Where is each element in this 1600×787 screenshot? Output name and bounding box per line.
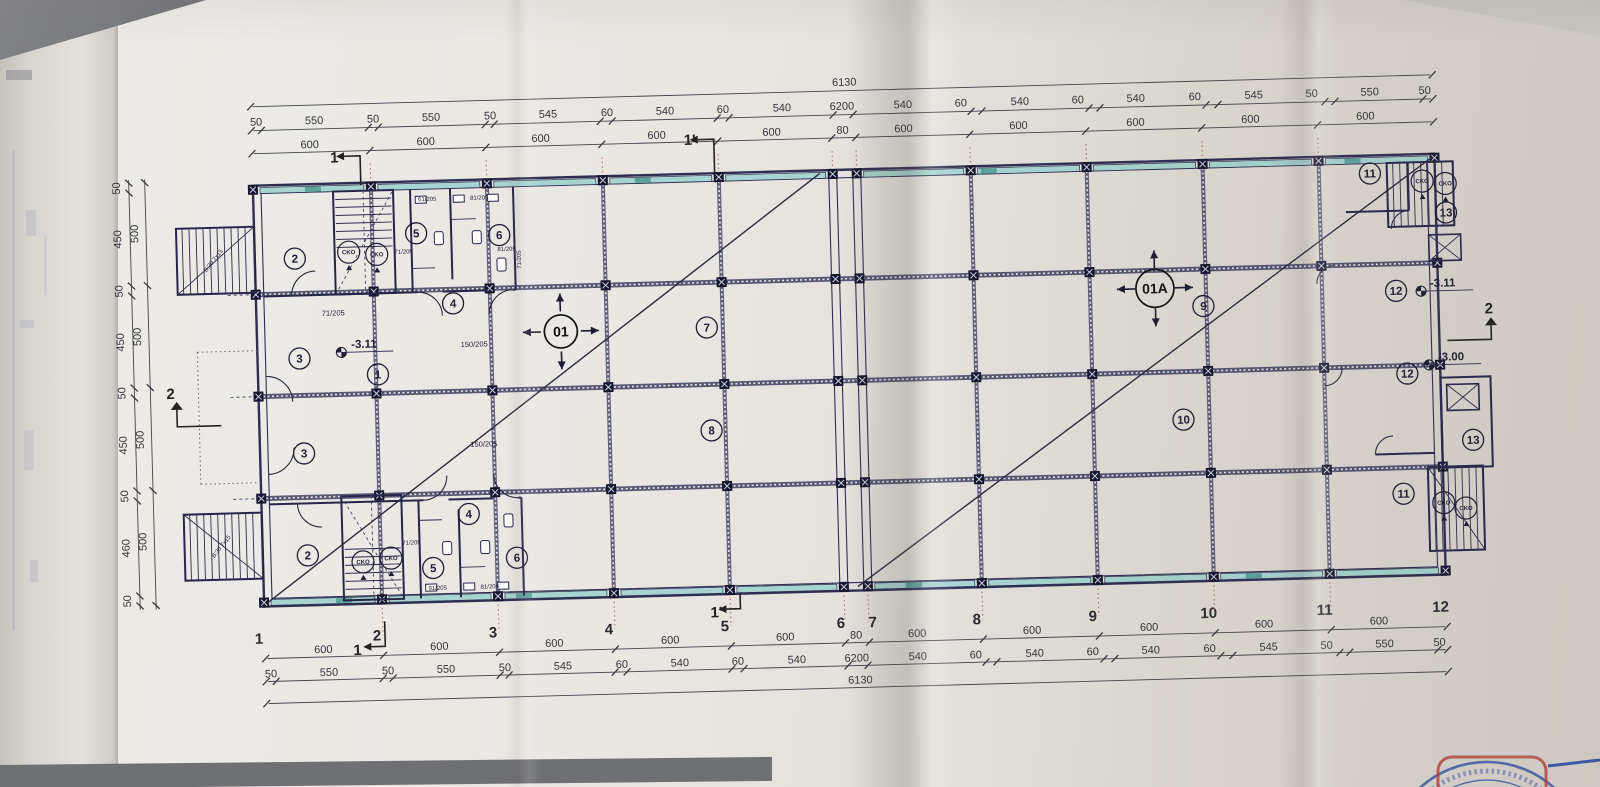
dim-label: 50 <box>250 116 263 128</box>
dim-label: 550 <box>1375 638 1394 650</box>
stamp-red-box <box>1438 757 1546 787</box>
ghost-drawing-mark <box>44 235 47 295</box>
door-size-label: 71/205 <box>394 249 413 256</box>
room-tag: 5 <box>430 563 437 575</box>
dim-label: 600 <box>1241 113 1260 125</box>
section-label: 1 <box>330 149 339 166</box>
dim-label: 550 <box>422 112 441 124</box>
stair-core-top-left: CKO CKO <box>333 190 396 295</box>
dim-label: 50 <box>382 665 395 677</box>
grid-number: 6 <box>836 615 845 632</box>
left-dimension-chain: 50 450 50 450 50 450 50 460 50 500 500 5… <box>111 179 160 610</box>
dim-label: 540 <box>894 99 913 111</box>
dim-label: 50 <box>1320 640 1333 652</box>
ghost-drawing-mark <box>20 320 34 328</box>
room-tag: 2 <box>304 550 311 562</box>
dim-label: 600 <box>416 136 435 148</box>
dim-label: 60 <box>1086 646 1099 658</box>
entry-canopy <box>197 350 295 484</box>
shaft-label: CKO <box>1459 506 1473 512</box>
room-tag: 3 <box>296 353 303 365</box>
dim-label: 50 <box>367 113 380 125</box>
room-tag: 13 <box>1467 435 1480 447</box>
room-tag: 6 <box>496 230 503 242</box>
grid-number: 2 <box>373 627 382 644</box>
room-tag: 6 <box>514 553 521 565</box>
dim-label: 450 <box>112 230 124 249</box>
shaft-label: CKO <box>356 560 370 566</box>
dim-label: 6200 <box>829 100 854 113</box>
dim-label: 600 <box>1140 621 1159 633</box>
room-tag: 9 <box>1200 301 1207 313</box>
stamp <box>1387 757 1600 787</box>
room-tag: 11 <box>1397 489 1410 501</box>
dim-label: 50 <box>499 662 512 674</box>
stamp-signature-line <box>1548 760 1600 766</box>
section-marker-1-top: 1 <box>330 149 361 186</box>
photo-of-floor-plan-drawing: 6130 50 550 50 550 50 545 60 540 60 540 … <box>0 0 1600 787</box>
dim-label: 600 <box>661 634 680 646</box>
room-tag: 5 <box>413 228 420 240</box>
dim-label: 550 <box>1360 86 1379 98</box>
dim-label: 540 <box>1141 644 1160 656</box>
dim-label: 60 <box>1188 91 1201 103</box>
room-tag: 13 <box>1439 207 1452 219</box>
level-label: -3.11 <box>351 338 377 351</box>
grid-number: 4 <box>605 621 614 638</box>
section-marker-2-left: 2 <box>166 385 221 427</box>
dim-label: 50 <box>113 285 125 298</box>
level-label: -3.00 <box>1438 351 1465 364</box>
dim-label: 450 <box>115 333 127 352</box>
dim-label: 600 <box>314 644 333 656</box>
stair-label: B:30 7x15 <box>211 534 233 559</box>
dim-label: 550 <box>437 663 456 675</box>
dim-label: 540 <box>1126 93 1145 105</box>
door-size-label: 71/205 <box>322 308 345 318</box>
dim-label: 600 <box>647 130 666 142</box>
shaft-label: CKO <box>370 252 384 258</box>
dim-label: 80 <box>850 629 863 641</box>
dim-label: 500 <box>134 431 146 450</box>
door-size-label: 81/205 <box>470 195 489 202</box>
dim-label: 60 <box>732 656 745 668</box>
ghost-drawing-mark <box>26 210 36 236</box>
room-tags: 2 5 6 4 3 1 7 3 8 9 10 11 13 12 12 13 11… <box>283 160 1487 582</box>
dim-label: 600 <box>300 139 319 151</box>
room-tag: 12 <box>1390 286 1403 298</box>
space-marker-label: 01A <box>1142 280 1168 297</box>
top-dimension-chain: 6130 50 550 50 550 50 545 60 540 60 540 … <box>247 61 1437 158</box>
dim-label: 500 <box>132 328 144 347</box>
external-stair-bottom-left: B:30 7x15 <box>184 513 264 581</box>
room-tag: 12 <box>1401 368 1414 380</box>
section-label: 1' <box>710 604 722 621</box>
dim-label: 50 <box>111 182 123 195</box>
dim-label: 50 <box>1418 85 1431 97</box>
dim-label: 600 <box>1370 615 1389 627</box>
space-marker-label: 01 <box>553 323 569 339</box>
dim-label: 50 <box>484 110 497 122</box>
room-tag: 3 <box>301 448 308 460</box>
dim-label: 540 <box>656 105 675 117</box>
dim-label: 60 <box>1203 643 1216 655</box>
space-marker-01: 01 <box>522 292 600 370</box>
dim-label: 600 <box>908 628 927 640</box>
dim-label: 600 <box>545 637 564 649</box>
section-marker-2-right: 2 <box>1446 300 1497 340</box>
dim-label: 600 <box>894 123 913 135</box>
dim-label: 540 <box>773 102 792 114</box>
section-label: 2 <box>1484 300 1493 317</box>
dim-label: 540 <box>788 654 807 666</box>
dim-label: 545 <box>539 108 558 120</box>
opening-size-labels: 71/205 150/205 150/205 <box>322 304 498 453</box>
dim-label: 600 <box>762 126 781 138</box>
grid-number: 8 <box>972 611 981 628</box>
dim-label: 600 <box>1009 120 1028 132</box>
dim-label: 540 <box>1025 648 1044 660</box>
dim-label: 600 <box>1126 117 1145 129</box>
dim-label: 50 <box>119 490 131 503</box>
door-size-label: 81/205 <box>497 247 516 254</box>
stair-label: B:30 7x15 <box>203 248 225 273</box>
dim-label: 540 <box>671 657 690 669</box>
section-label: 1 <box>353 642 362 659</box>
dim-label: 450 <box>118 436 130 455</box>
dim-label: 60 <box>601 107 614 119</box>
dim-label: 600 <box>531 133 550 145</box>
room-tag: 2 <box>291 254 298 266</box>
section-marker-1p-top: 1' <box>684 131 715 174</box>
shaft-label: CKO <box>1438 181 1452 187</box>
dim-label: 600 <box>1023 625 1042 637</box>
grid-number: 10 <box>1200 605 1217 622</box>
dim-label: 600 <box>1356 110 1375 122</box>
door-size-label: 150/205 <box>461 339 488 349</box>
floor-plan-sheet: 6130 50 550 50 550 50 545 60 540 60 540 … <box>71 21 1528 720</box>
space-marker-01A: 01A <box>1116 249 1194 327</box>
dim-label: 600 <box>776 631 795 643</box>
dim-label: 500 <box>137 532 149 551</box>
dim-label: 50 <box>116 387 128 400</box>
door-size-label: 91/205 <box>429 586 448 593</box>
dim-label: 545 <box>1244 89 1263 101</box>
external-stair-top-left: B:30 7x15 <box>176 227 256 295</box>
dim-label: 540 <box>908 651 927 663</box>
dim-label: 545 <box>554 660 573 672</box>
stair-core-bottom-left: CKO CKO <box>341 495 404 601</box>
ghost-drawing-mark <box>24 430 34 470</box>
dim-label: 50 <box>265 668 278 680</box>
room-tag: 10 <box>1177 414 1190 426</box>
room-tag: 1 <box>375 369 382 381</box>
room-tag: 7 <box>703 322 710 334</box>
dim-label: 60 <box>955 97 968 109</box>
shaft-label: CKO <box>384 556 398 562</box>
shaft-label: CKO <box>1415 179 1429 185</box>
door-size-label: 150/205 <box>470 439 497 449</box>
shaft-label: CKO <box>1437 500 1451 506</box>
grid-number: 11 <box>1317 602 1333 619</box>
room-tag: 4 <box>465 509 472 521</box>
dim-total-top: 6130 <box>832 76 857 89</box>
dim-label: 460 <box>120 539 132 558</box>
dim-label: 600 <box>1255 618 1274 630</box>
room-tag: 8 <box>708 425 715 437</box>
dim-label: 550 <box>320 667 339 679</box>
dim-total-bottom: 6130 <box>848 674 873 687</box>
door-size-label: 71/205 <box>517 250 524 269</box>
door-size-label: 71/205 <box>402 540 421 547</box>
ghost-drawing-mark <box>30 560 38 582</box>
ghost-drawing-mark <box>12 150 15 630</box>
dim-label: 50 <box>1305 88 1318 100</box>
grid-number: 12 <box>1432 599 1449 616</box>
dim-label: 545 <box>1259 641 1278 653</box>
bottom-dimension-chain: 1 2 3 4 5 6 7 8 9 10 11 12 600 600 600 6… <box>255 599 1452 708</box>
room-tag: 11 <box>1364 168 1377 180</box>
grid-number: 9 <box>1088 608 1097 625</box>
level-label: -3.11 <box>1430 277 1456 290</box>
dim-label: 500 <box>129 225 141 244</box>
dim-label: 600 <box>430 641 449 653</box>
dim-label: 80 <box>836 125 849 137</box>
stair-core-bottom-right: CKO CKO <box>1375 434 1485 553</box>
dim-label: 60 <box>1072 94 1085 106</box>
grid-number: 3 <box>489 624 498 641</box>
door-size-label: 81/205 <box>481 584 500 591</box>
dim-label: 50 <box>122 595 134 608</box>
dim-label: 60 <box>969 649 982 661</box>
section-label: 2 <box>166 386 175 403</box>
door-size-label: 61/205 <box>418 197 437 204</box>
ghost-drawing-mark <box>6 70 32 80</box>
grid-number: 7 <box>868 614 877 631</box>
dim-label: 550 <box>305 115 324 127</box>
grid-number: 1 <box>255 631 264 648</box>
shaft-label: CKO <box>342 250 356 256</box>
dim-label: 540 <box>1010 96 1029 108</box>
room-tag: 4 <box>450 298 457 310</box>
dim-label: 6200 <box>844 652 869 665</box>
dim-label: 60 <box>717 104 730 116</box>
floor-plan-svg: 6130 50 550 50 550 50 545 60 540 60 540 … <box>71 21 1528 720</box>
